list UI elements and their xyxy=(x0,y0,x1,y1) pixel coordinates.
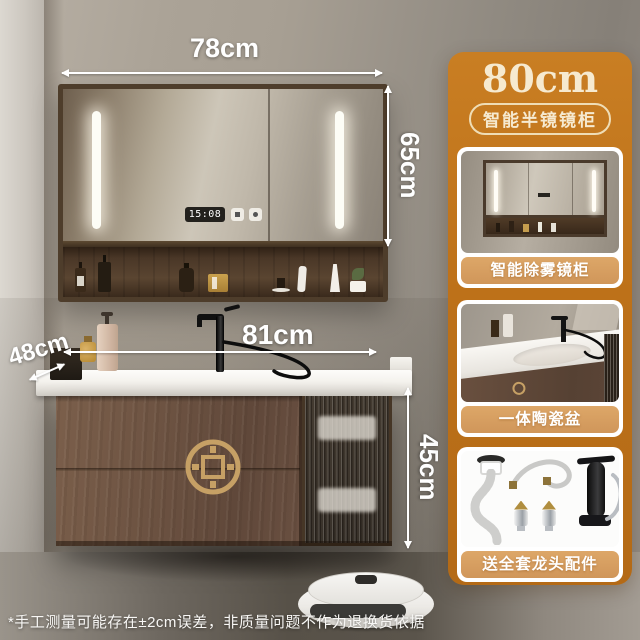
light-button-icon xyxy=(249,208,262,221)
thumb-led-left-icon xyxy=(494,170,498,212)
lotion-bottle-beige xyxy=(97,324,118,371)
open-shelf xyxy=(63,247,383,297)
mirror-cabinet-thumb xyxy=(461,151,619,253)
vanity-cabinet xyxy=(56,396,392,546)
dimension-mirror-width-label: 78cm xyxy=(190,33,254,64)
mirror-door-seam xyxy=(268,89,270,241)
dimension-cabinet-height-label: 45cm xyxy=(413,434,444,501)
bottle-pump-dark xyxy=(98,262,111,292)
dimension-mirror-height-arrow xyxy=(387,86,389,246)
feature-card-basin: 一体陶瓷盆 xyxy=(457,300,623,437)
angle-valve xyxy=(513,501,529,531)
thumb-bottle xyxy=(538,222,542,232)
thumb-shelf xyxy=(483,218,607,237)
bottle-round xyxy=(179,268,194,292)
thumb-mirror xyxy=(483,160,607,218)
mirror-glass: 15:08 xyxy=(63,89,383,241)
valve-handle xyxy=(514,501,528,510)
dimension-counter-width-label: 81cm xyxy=(242,319,306,351)
towel xyxy=(318,416,376,440)
thumb-bottle-white xyxy=(503,314,513,337)
card-label: 送全套龙头配件 xyxy=(461,551,619,578)
defog-button-icon xyxy=(231,208,244,221)
thumb-led-right-icon xyxy=(592,170,596,212)
thumb-bottle xyxy=(551,223,556,232)
robot-sensor xyxy=(355,575,377,584)
tube-white xyxy=(297,266,307,292)
promo-panel: 80cm 智能半镜镜柜 xyxy=(448,52,632,585)
thumb-door-seam xyxy=(572,163,573,215)
thumb-bottle xyxy=(509,221,514,232)
clock-display: 15:08 xyxy=(185,207,225,222)
dimension-cabinet-height-arrow xyxy=(407,388,409,548)
panel-badge-row: 智能半镜镜柜 xyxy=(448,103,632,135)
braided-hose xyxy=(505,453,581,499)
feature-card-accessories: 送全套龙头配件 xyxy=(457,447,623,582)
led-strip-right-icon xyxy=(335,111,344,229)
towel xyxy=(318,488,376,512)
led-strip-left-icon xyxy=(92,111,101,229)
cabinet-bottom-rail xyxy=(56,541,392,546)
thumb-bottle xyxy=(496,223,500,232)
dimension-mirror-width-arrow xyxy=(62,72,382,74)
product-image: 15:08 78cm 65cm 81cm 48cm xyxy=(0,0,640,640)
mirror-cabinet: 15:08 xyxy=(58,84,388,302)
panel-title: 80cm xyxy=(448,58,632,101)
valve-nut xyxy=(545,526,553,531)
valve-handle xyxy=(542,501,556,510)
emblem-icon xyxy=(184,438,242,496)
dimension-mirror-height-label: 65cm xyxy=(394,132,425,199)
thumb-clock-display xyxy=(538,193,550,197)
panel-badge: 智能半镜镜柜 xyxy=(469,103,611,135)
faucet-flex-hose xyxy=(571,463,619,533)
bottle-cone-white xyxy=(330,264,340,292)
angle-valve xyxy=(541,501,557,531)
valve-body xyxy=(542,510,556,526)
thumb-glass-door xyxy=(604,334,619,402)
valve-body xyxy=(514,510,528,526)
card-label: 一体陶瓷盆 xyxy=(461,406,619,433)
soap-box-gold xyxy=(208,274,228,292)
faucet-accessories-thumb xyxy=(461,451,619,547)
feature-card-mirror: 智能除雾镜柜 xyxy=(457,147,623,288)
fluted-glass-door xyxy=(302,396,392,546)
disclaimer-text: *手工测量可能存在±2cm误差，非质量问题不作为退换货依据 xyxy=(8,611,444,632)
dimension-counter-width-arrow xyxy=(64,351,376,353)
thumb-emblem-icon xyxy=(512,381,526,395)
valve-nut xyxy=(517,526,525,531)
thumb-bottle-amber xyxy=(491,320,499,337)
plant-pot xyxy=(350,272,366,292)
card-label: 智能除雾镜柜 xyxy=(461,257,619,284)
thumb-door-seam xyxy=(528,163,529,215)
drawer-seam xyxy=(56,468,300,471)
bottle-on-dish xyxy=(272,278,290,292)
ceramic-basin-thumb xyxy=(461,304,619,402)
faucet-nozzle xyxy=(197,318,202,327)
thumb-bottle xyxy=(523,224,529,232)
bottle-amber xyxy=(75,268,86,292)
